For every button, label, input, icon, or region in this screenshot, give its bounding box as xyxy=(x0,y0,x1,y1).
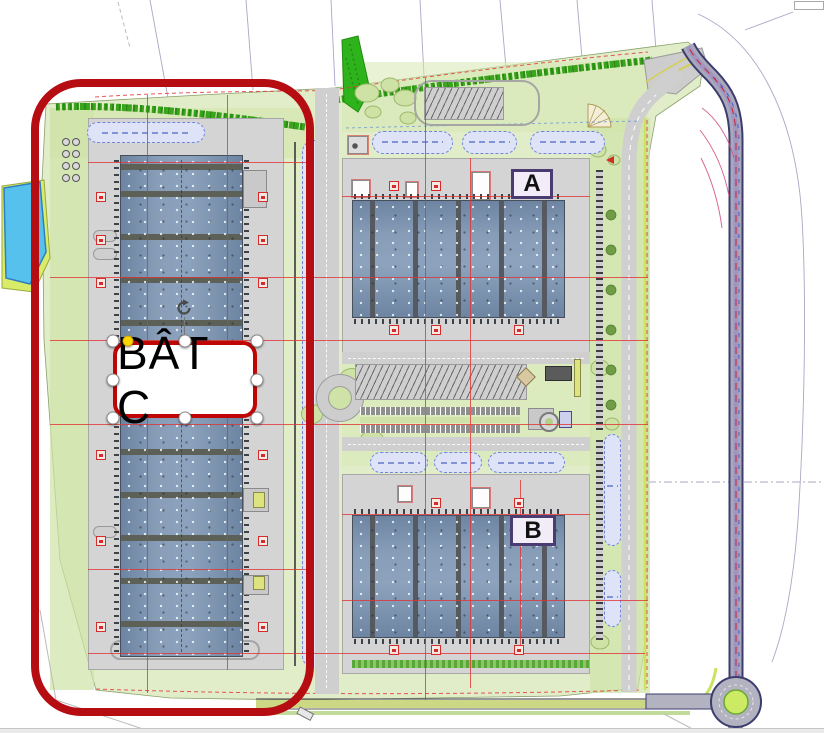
retention-basin-a xyxy=(462,131,517,154)
selection-handle-middle-right[interactable] xyxy=(251,374,264,387)
shelter-strip xyxy=(574,359,581,397)
loading-docks-south-a xyxy=(354,319,563,324)
selection-handle-top-left[interactable] xyxy=(107,335,120,348)
building-b-label: B xyxy=(510,515,556,546)
cad-gridline xyxy=(470,158,471,688)
fire-marker xyxy=(431,498,441,508)
bike-canopy xyxy=(360,425,520,433)
shelter-box xyxy=(559,411,572,428)
canopy-row-east xyxy=(596,440,603,640)
bottom-edge-band xyxy=(0,728,824,733)
fire-marker xyxy=(431,325,441,335)
cad-gridline xyxy=(342,600,648,601)
south-access-road xyxy=(256,699,712,713)
pump-station xyxy=(348,136,368,154)
fire-marker xyxy=(431,181,441,191)
linear-swale-east xyxy=(604,434,621,546)
linear-swale-east xyxy=(604,570,621,627)
road-above-b xyxy=(342,437,590,451)
technical-building xyxy=(545,366,572,381)
south-hedge-band xyxy=(352,660,590,668)
retention-basin-a xyxy=(372,131,453,154)
bat-c-text-box[interactable]: BÂT C xyxy=(113,341,257,418)
site-plan-canvas: A B BÂT C xyxy=(0,0,824,733)
central-east-west-road xyxy=(342,352,590,364)
legend-fragment xyxy=(794,1,824,10)
building-b-label-text: B xyxy=(524,517,541,545)
entrance-arrow-icon xyxy=(606,156,614,164)
retention-basin-b xyxy=(488,452,565,473)
fire-marker xyxy=(514,498,524,508)
fire-marker xyxy=(514,645,524,655)
parking-loop-road xyxy=(414,80,540,126)
public-road xyxy=(688,46,739,700)
gatehouse xyxy=(398,486,412,502)
retention-basin-b xyxy=(370,452,428,473)
selection-handle-top-center[interactable] xyxy=(179,335,192,348)
bike-canopy xyxy=(360,407,520,415)
building-a-label-text: A xyxy=(523,170,540,198)
retention-basin-b xyxy=(434,452,482,473)
fire-marker xyxy=(431,645,441,655)
fire-marker xyxy=(514,325,524,335)
canopy-row-east xyxy=(596,170,603,430)
green-median xyxy=(360,417,520,423)
adjust-handle[interactable] xyxy=(123,336,134,347)
fire-marker xyxy=(389,645,399,655)
roundabout xyxy=(646,677,761,733)
selection-handle-bottom-left[interactable] xyxy=(107,412,120,425)
sprinkler-tank-unit xyxy=(472,488,490,508)
cad-gridline xyxy=(425,78,426,700)
fire-marker xyxy=(389,325,399,335)
loading-docks-south-b xyxy=(354,639,563,644)
selection-handle-middle-left[interactable] xyxy=(107,374,120,387)
selection-handle-bottom-center[interactable] xyxy=(179,412,192,425)
building-a-label: A xyxy=(511,169,553,199)
retention-basin-a xyxy=(530,131,605,154)
selection-handle-bottom-right[interactable] xyxy=(251,412,264,425)
car-parking-central xyxy=(355,364,527,400)
rotate-handle-icon[interactable] xyxy=(174,298,194,318)
warehouse-building-a xyxy=(352,200,565,318)
selection-handle-top-right[interactable] xyxy=(251,335,264,348)
fire-marker xyxy=(389,181,399,191)
